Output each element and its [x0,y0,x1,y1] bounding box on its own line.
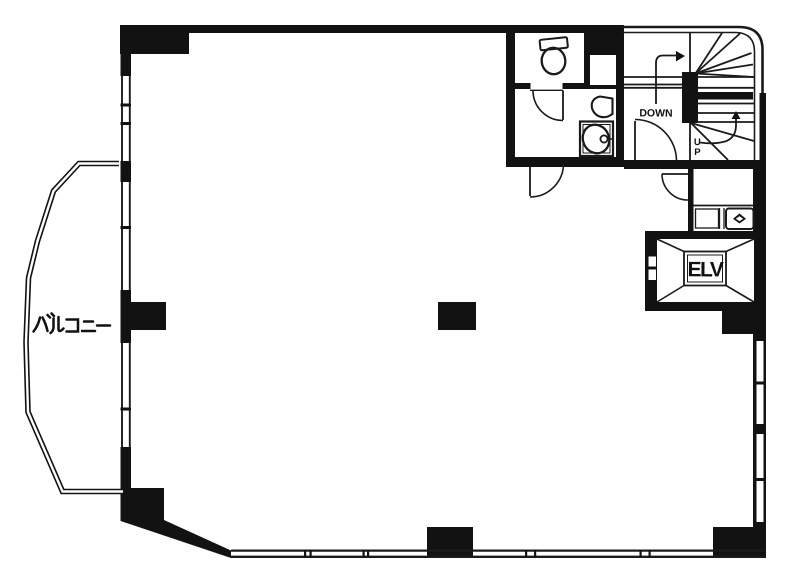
svg-text:DOWN: DOWN [639,107,672,119]
svg-text:P: P [694,147,701,158]
svg-text:ELV: ELV [688,258,724,281]
